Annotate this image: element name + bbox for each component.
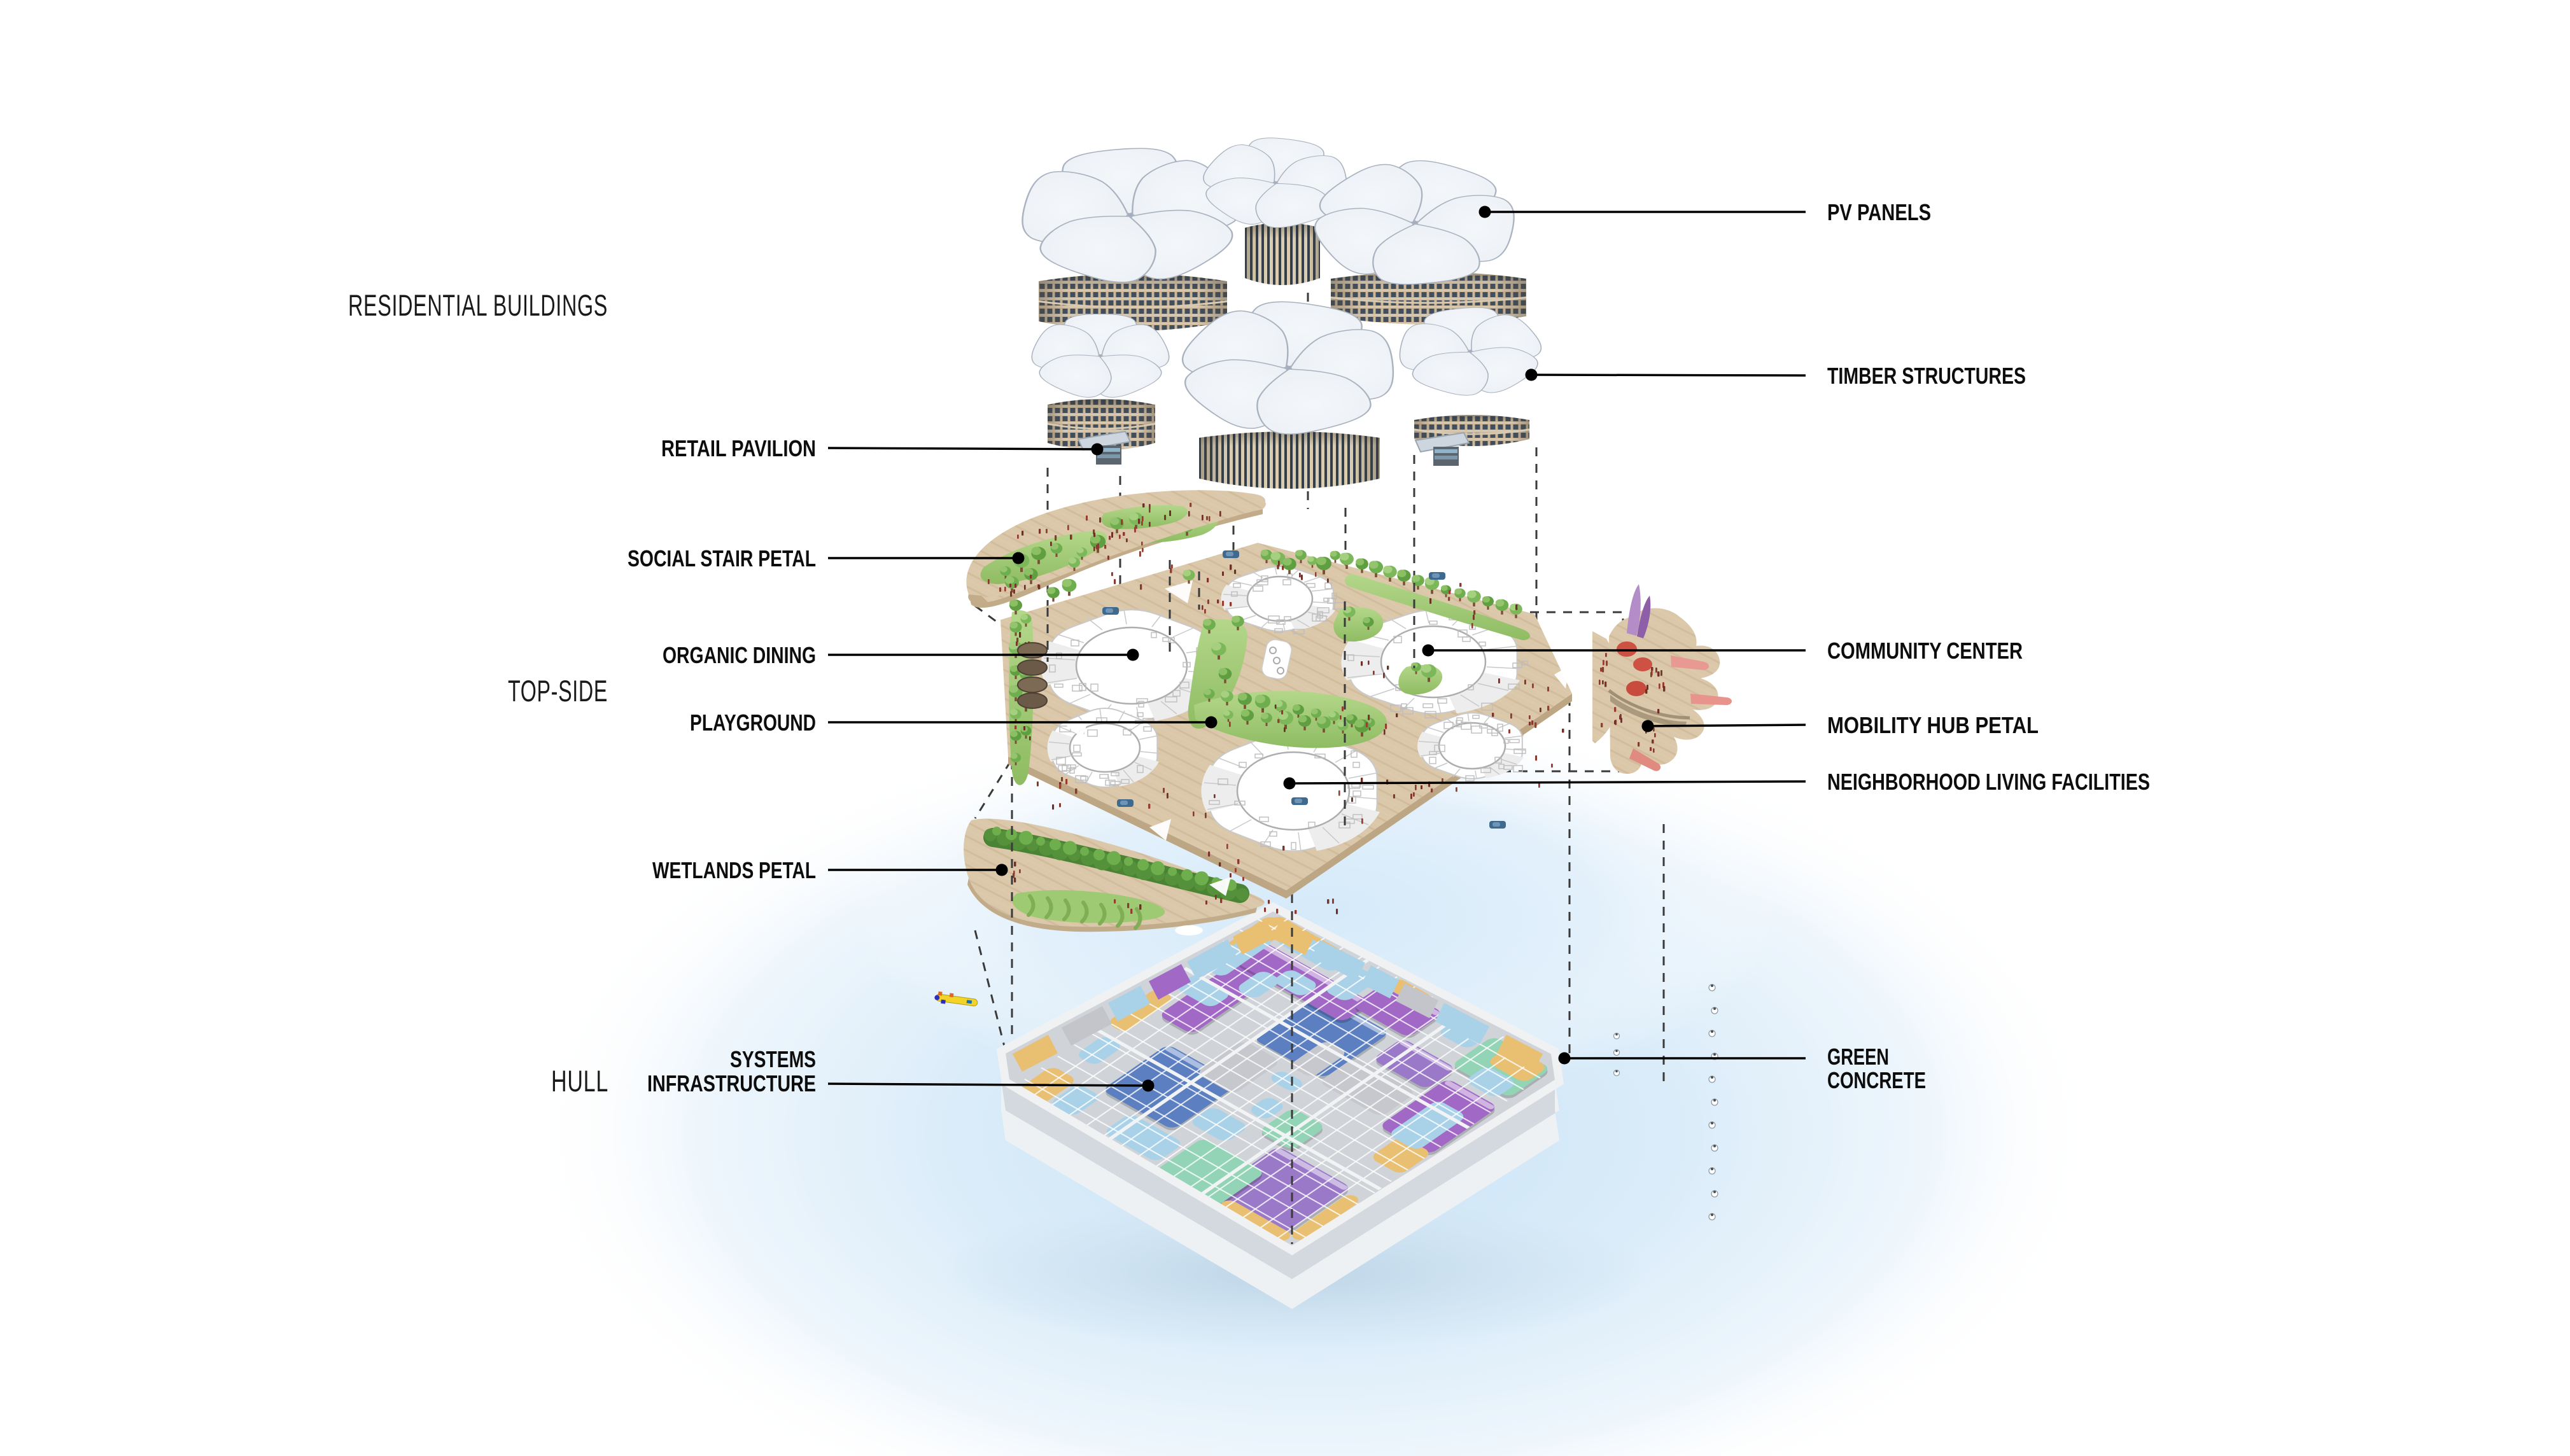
svg-text:COMMUNITY CENTER: COMMUNITY CENTER [1827, 638, 2023, 664]
svg-text:PLAYGROUND: PLAYGROUND [690, 710, 816, 736]
svg-text:NEIGHBORHOOD LIVING FACILITIES: NEIGHBORHOOD LIVING FACILITIES [1827, 769, 2150, 795]
svg-text:TOP-SIDE: TOP-SIDE [508, 674, 608, 708]
svg-text:HULL: HULL [551, 1064, 608, 1098]
svg-text:SOCIAL STAIR PETAL: SOCIAL STAIR PETAL [628, 545, 816, 571]
svg-text:INFRASTRUCTURE: INFRASTRUCTURE [647, 1070, 816, 1096]
svg-text:RESIDENTIAL BUILDINGS: RESIDENTIAL BUILDINGS [348, 288, 608, 322]
svg-text:GREEN: GREEN [1827, 1044, 1889, 1070]
svg-text:MOBILITY HUB PETAL: MOBILITY HUB PETAL [1827, 712, 2039, 738]
svg-text:PV PANELS: PV PANELS [1827, 199, 1931, 225]
svg-text:SYSTEMS: SYSTEMS [730, 1046, 816, 1072]
svg-text:CONCRETE: CONCRETE [1827, 1067, 1926, 1093]
svg-text:ORGANIC DINING: ORGANIC DINING [663, 642, 816, 668]
svg-text:WETLANDS PETAL: WETLANDS PETAL [652, 857, 816, 883]
svg-text:TIMBER STRUCTURES: TIMBER STRUCTURES [1827, 363, 2026, 389]
svg-text:RETAIL PAVILION: RETAIL PAVILION [661, 435, 816, 461]
